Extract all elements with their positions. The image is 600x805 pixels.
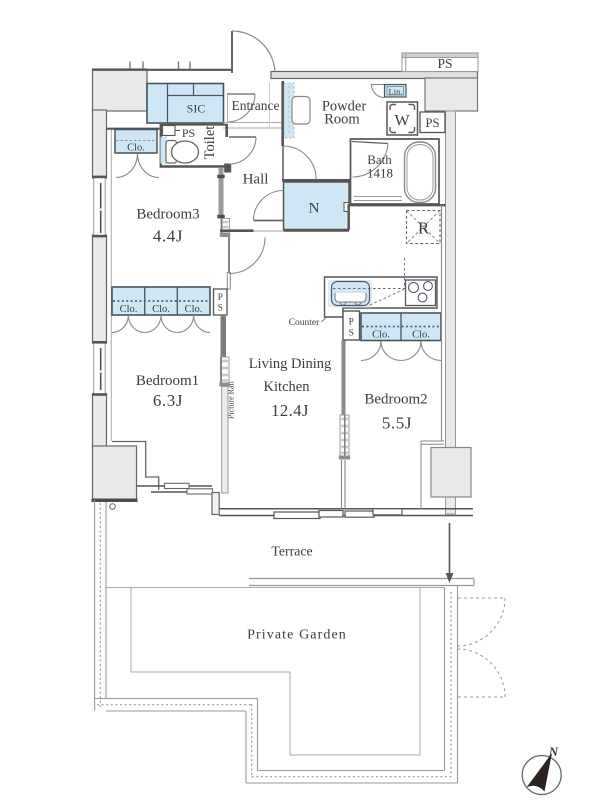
svg-text:Bedroom1: Bedroom1: [136, 373, 199, 389]
svg-text:Counter: Counter: [289, 318, 320, 328]
svg-text:Clo.: Clo.: [152, 304, 170, 315]
svg-text:R: R: [418, 219, 429, 238]
svg-text:1418: 1418: [367, 166, 393, 181]
svg-text:PS: PS: [426, 116, 440, 130]
svg-text:5.5J: 5.5J: [382, 414, 412, 433]
svg-text:Clo.: Clo.: [372, 330, 390, 341]
svg-text:12.4J: 12.4J: [271, 401, 309, 420]
svg-text:W: W: [394, 113, 410, 130]
svg-text:Lin.: Lin.: [389, 87, 403, 97]
svg-text:PS: PS: [437, 56, 452, 71]
svg-text:P: P: [218, 292, 223, 302]
svg-text:Clo.: Clo.: [412, 330, 430, 341]
svg-text:Clo.: Clo.: [185, 304, 203, 315]
svg-text:N: N: [309, 201, 320, 217]
svg-text:Terrace: Terrace: [271, 544, 312, 559]
svg-text:N: N: [548, 744, 559, 759]
svg-text:Living Dining: Living Dining: [249, 356, 332, 372]
svg-text:SIC: SIC: [187, 102, 206, 116]
svg-text:Clo.: Clo.: [127, 143, 145, 154]
svg-text:Toilet: Toilet: [202, 126, 218, 160]
svg-text:Room: Room: [324, 112, 360, 128]
svg-text:4.4J: 4.4J: [153, 227, 183, 246]
svg-text:Kitchen: Kitchen: [264, 379, 311, 395]
svg-text:P: P: [349, 318, 354, 328]
svg-text:6.3J: 6.3J: [153, 391, 183, 410]
svg-text:Bedroom3: Bedroom3: [136, 207, 199, 223]
svg-text:PS: PS: [182, 126, 195, 140]
svg-text:S: S: [349, 329, 354, 339]
svg-text:Clo.: Clo.: [120, 304, 138, 315]
svg-text:Bedroom2: Bedroom2: [364, 392, 427, 408]
svg-text:Hall: Hall: [243, 172, 269, 188]
svg-text:Private Garden: Private Garden: [247, 628, 347, 643]
svg-text:Entrance: Entrance: [232, 98, 280, 113]
svg-text:S: S: [218, 303, 223, 313]
